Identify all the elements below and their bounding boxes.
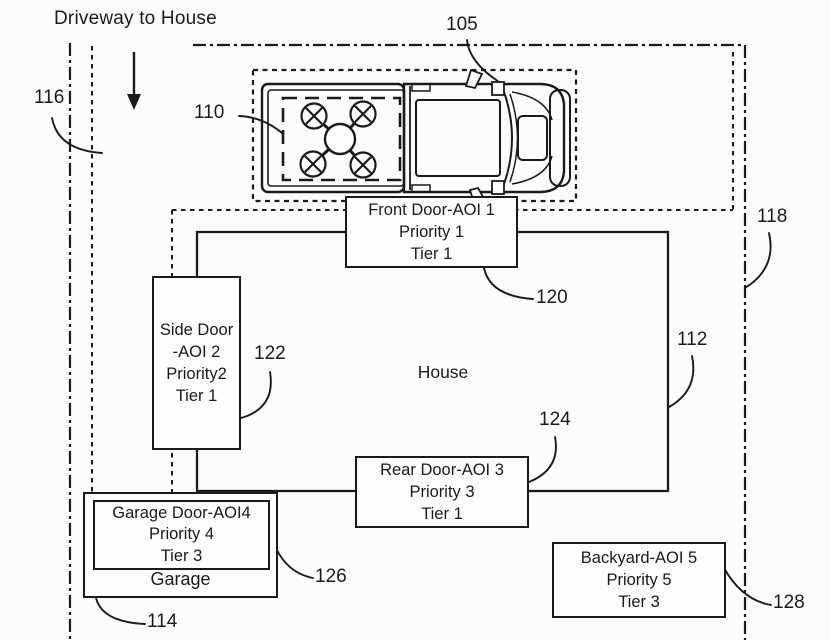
side-door-aoi-line3: Priority2	[154, 363, 239, 385]
leader-128	[724, 568, 771, 605]
leader-120	[484, 268, 533, 299]
side-door-aoi-line4: Tier 1	[154, 385, 239, 407]
ref-124: 124	[539, 409, 571, 431]
quadcopter-drone-icon	[301, 102, 376, 178]
backyard-aoi-line1: Backyard-AOI 5	[554, 547, 724, 569]
garage-label: Garage	[85, 569, 276, 593]
ref-110: 110	[194, 102, 224, 124]
driveway-to-house-label: Driveway to House	[54, 8, 217, 30]
backyard-aoi-line2: Priority 5	[554, 569, 724, 591]
rear-door-aoi-line3: Tier 1	[357, 503, 527, 525]
leader-118	[745, 233, 771, 288]
garage-door-aoi-line3: Tier 3	[95, 546, 268, 567]
side-door-aoi-box: Side Door -AOI 2 Priority2 Tier 1	[152, 276, 241, 450]
down-arrow-icon	[127, 52, 141, 110]
leader-116	[52, 118, 102, 153]
house-label: House	[393, 362, 493, 383]
rear-door-aoi-line1: Rear Door-AOI 3	[357, 459, 527, 481]
garage-door-aoi-box: Garage Door-AOI4 Priority 4 Tier 3	[93, 500, 270, 570]
leader-126	[272, 538, 313, 578]
patent-figure: Driveway to House 116 110 105 118 120 12…	[0, 0, 830, 640]
leader-110	[239, 116, 282, 133]
leader-114	[96, 598, 145, 624]
ref-122: 122	[254, 343, 286, 365]
ref-105: 105	[446, 14, 478, 36]
side-door-aoi-line2: -AOI 2	[154, 341, 239, 363]
garage-box: Garage Door-AOI4 Priority 4 Tier 3 Garag…	[83, 492, 278, 598]
rear-door-aoi-line2: Priority 3	[357, 481, 527, 503]
truck-mirror-top	[466, 70, 482, 88]
front-door-aoi-box: Front Door-AOI 1 Priority 1 Tier 1	[345, 196, 518, 268]
backyard-aoi-box: Backyard-AOI 5 Priority 5 Tier 3	[552, 542, 726, 618]
front-door-aoi-line3: Tier 1	[347, 243, 516, 265]
front-door-aoi-line2: Priority 1	[347, 221, 516, 243]
leader-122	[241, 372, 271, 418]
garage-door-aoi-line2: Priority 4	[95, 524, 268, 545]
pickup-truck-icon	[262, 70, 570, 206]
ref-114: 114	[147, 611, 177, 633]
ref-116: 116	[34, 87, 64, 109]
backyard-aoi-line3: Tier 3	[554, 591, 724, 613]
leader-112	[669, 356, 693, 407]
ref-112: 112	[677, 329, 707, 351]
side-door-aoi-line1: Side Door	[154, 319, 239, 341]
leader-124	[529, 437, 556, 482]
ref-120: 120	[536, 287, 568, 309]
ref-118: 118	[757, 206, 787, 228]
rear-door-aoi-box: Rear Door-AOI 3 Priority 3 Tier 1	[355, 456, 529, 528]
front-door-aoi-line1: Front Door-AOI 1	[347, 199, 516, 221]
ref-126: 126	[315, 566, 347, 588]
ref-128: 128	[773, 592, 805, 614]
garage-door-aoi-line1: Garage Door-AOI4	[95, 503, 268, 524]
